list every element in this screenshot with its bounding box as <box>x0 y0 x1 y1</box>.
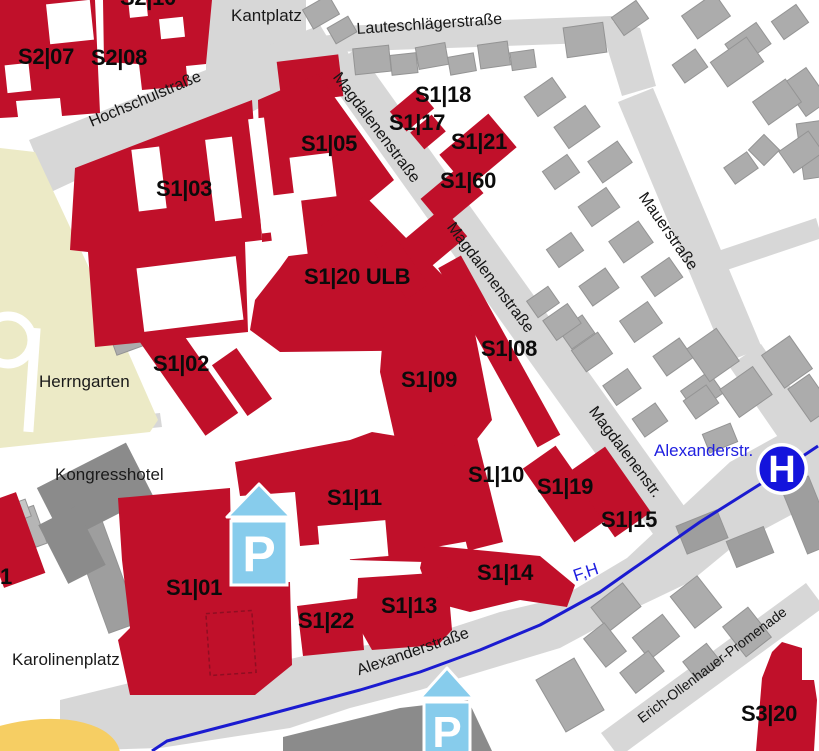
map-canvas: P P H <box>0 0 819 751</box>
campus-map: P P H S2|10S2|07S2|08S1|18S1|17S1|21S1|6… <box>0 0 819 751</box>
stop-letter: H <box>768 449 795 491</box>
building-s3-20 <box>756 642 817 751</box>
building-s1-13 <box>356 572 452 650</box>
tram-stop-icon[interactable]: H <box>756 443 808 495</box>
parking-letter: P <box>432 708 461 751</box>
building-s1-22 <box>297 598 364 656</box>
street-branch <box>715 218 819 272</box>
parking-letter: P <box>242 526 275 582</box>
building-s1-01 <box>118 488 292 695</box>
parking-icon[interactable]: P <box>227 484 291 585</box>
